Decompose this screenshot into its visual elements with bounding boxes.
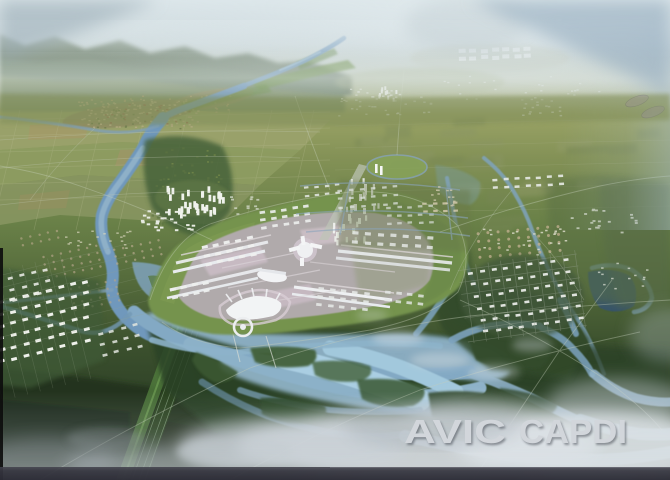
svg-text:CAPDI: CAPDI bbox=[519, 414, 627, 451]
svg-text:AVIC: AVIC bbox=[404, 414, 506, 451]
